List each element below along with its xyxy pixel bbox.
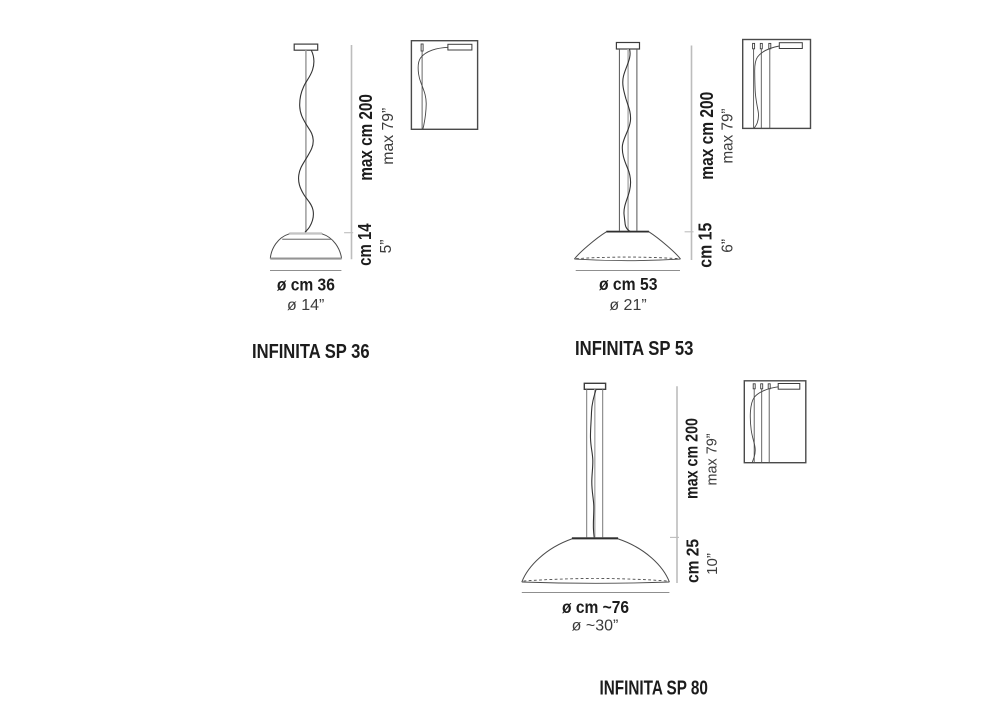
svg-text:INFINITA SP 53: INFINITA SP 53 [575,338,693,360]
svg-text:ø 14”: ø 14” [287,297,324,314]
svg-text:cm 25: cm 25 [683,539,703,583]
svg-text:INFINITA SP 36: INFINITA SP 36 [252,341,370,363]
svg-text:ø cm 36: ø cm 36 [277,275,335,295]
svg-text:cm 15: cm 15 [695,223,716,268]
svg-text:max 79”: max 79” [719,109,736,164]
svg-text:10”: 10” [704,553,721,575]
svg-text:max cm 200: max cm 200 [355,94,376,181]
svg-text:6”: 6” [720,239,737,253]
svg-text:max cm 200: max cm 200 [682,418,702,499]
svg-text:ø ~30”: ø ~30” [572,617,619,634]
svg-text:max 79”: max 79” [704,433,721,485]
svg-text:max cm 200: max cm 200 [696,92,717,180]
svg-text:5”: 5” [378,240,395,254]
svg-text:ø cm ~76: ø cm ~76 [562,597,629,617]
svg-text:ø 21”: ø 21” [609,297,646,314]
svg-text:INFINITA SP 80: INFINITA SP 80 [600,677,708,699]
svg-text:ø cm 53: ø cm 53 [599,274,658,294]
svg-text:max 79”: max 79” [380,108,397,165]
svg-text:cm 14: cm 14 [354,223,375,266]
